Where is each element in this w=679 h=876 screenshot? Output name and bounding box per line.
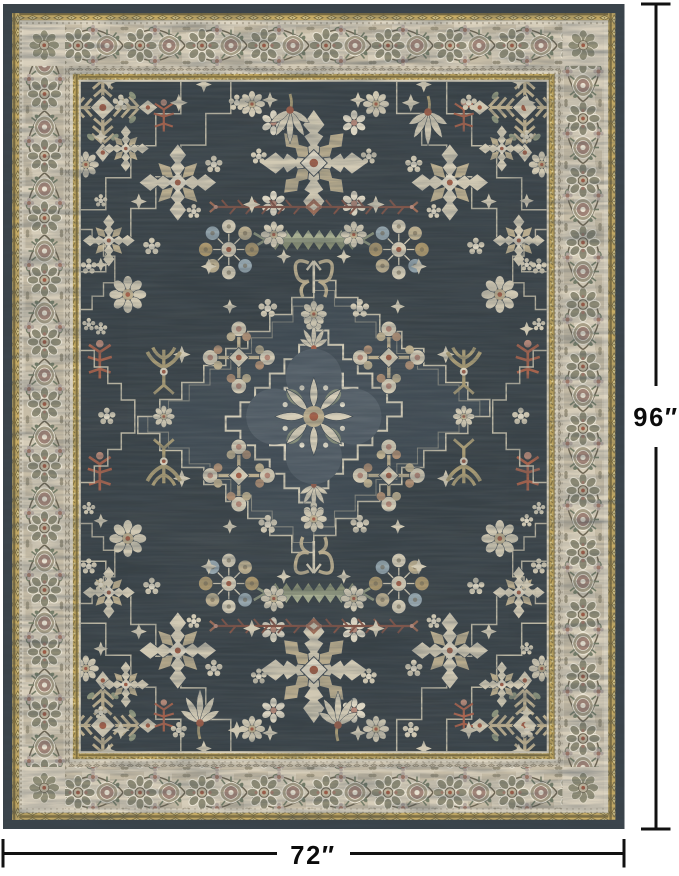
svg-text:72″: 72″ [290, 842, 335, 870]
svg-text:96″: 96″ [633, 404, 678, 432]
